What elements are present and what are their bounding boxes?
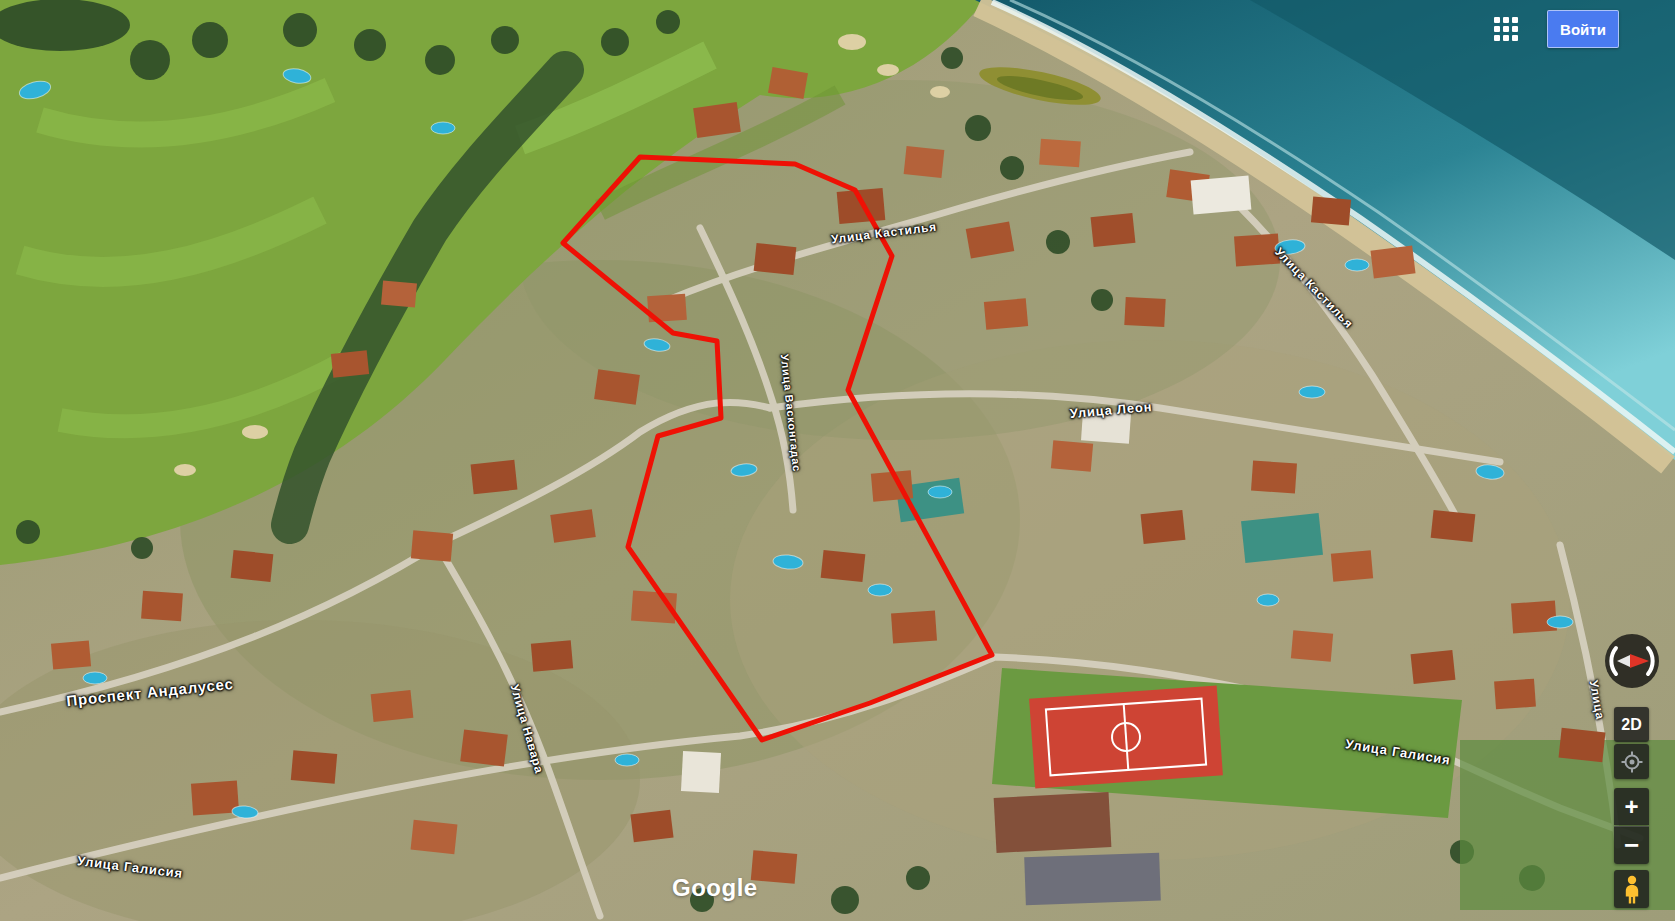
pegman-button[interactable] (1614, 870, 1649, 908)
apps-grid-button[interactable] (1494, 17, 1519, 42)
pegman-icon (1620, 874, 1644, 904)
zoom-out-button[interactable]: − (1614, 826, 1649, 864)
satellite-imagery (0, 0, 1675, 921)
apps-grid-icon (1494, 17, 1500, 23)
sign-in-button[interactable]: Войти (1547, 10, 1619, 48)
map-canvas[interactable]: Проспект Андалусес Улица Галисия Улица Н… (0, 0, 1675, 921)
zoom-in-button[interactable]: + (1614, 788, 1649, 825)
compass-icon (1603, 632, 1661, 690)
google-logo: Google (672, 874, 758, 902)
toggle-2d-button[interactable]: 2D (1614, 707, 1649, 742)
my-location-icon (1621, 751, 1643, 773)
compass-control[interactable] (1603, 632, 1661, 690)
my-location-button[interactable] (1614, 744, 1649, 779)
